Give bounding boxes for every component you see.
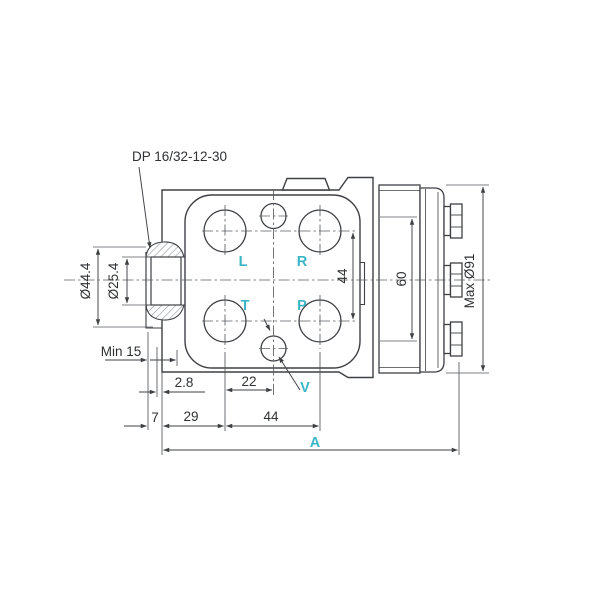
top-boss bbox=[283, 179, 330, 191]
dim-overall-length: A bbox=[310, 435, 321, 451]
spline-note: DP 16/32-12-30 bbox=[132, 149, 227, 164]
port-label-r: R bbox=[297, 254, 308, 270]
technical-drawing-page: DP 16/32-12-30 Ø44.4 Ø25.4 Min 15 2.8 22… bbox=[0, 0, 600, 600]
dim-outer-dia: Ø44.4 bbox=[78, 262, 93, 299]
dim-min-engagement: Min 15 bbox=[101, 344, 142, 359]
dim-flange-width: 7 bbox=[151, 410, 159, 425]
dim-motor-section: 60 bbox=[394, 271, 409, 286]
spline-bore bbox=[151, 257, 181, 305]
port-label-v: V bbox=[300, 380, 310, 396]
spline-section bbox=[146, 242, 184, 328]
port-label-l: L bbox=[239, 254, 248, 270]
dim-port-spacing-v: 44 bbox=[335, 268, 350, 284]
steering-unit-drawing: DP 16/32-12-30 Ø44.4 Ø25.4 Min 15 2.8 22… bbox=[0, 0, 600, 600]
dim-port-spacing-h: 44 bbox=[263, 409, 279, 424]
side-view bbox=[379, 185, 462, 373]
dim-face-offset: 2.8 bbox=[175, 375, 194, 390]
bolt-top bbox=[444, 204, 462, 238]
dim-v-offset: 22 bbox=[241, 374, 256, 389]
leader-spline-note bbox=[139, 167, 150, 248]
dim-max-diameter: Max Ø91 bbox=[462, 254, 477, 309]
dim-port-col-offset: 29 bbox=[183, 409, 198, 424]
port-label-t: T bbox=[241, 298, 250, 314]
bolt-bottom bbox=[444, 322, 462, 356]
port-label-p: P bbox=[297, 298, 307, 314]
dim-inner-dia: Ø25.4 bbox=[106, 262, 121, 299]
